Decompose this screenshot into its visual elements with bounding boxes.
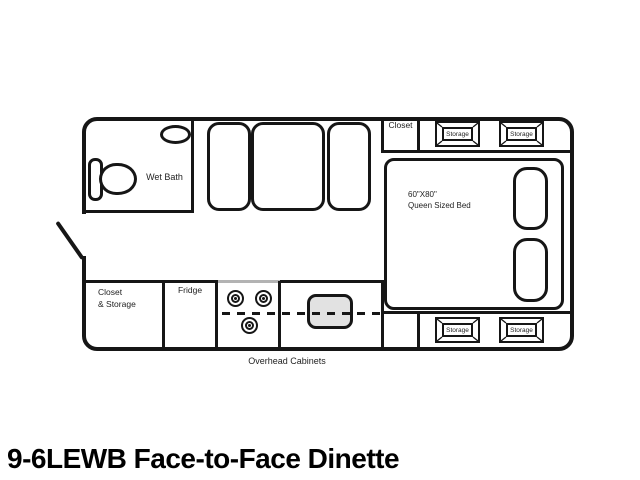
closet-label: Closet xyxy=(381,120,420,131)
counter-dashed-line xyxy=(222,312,380,315)
storage-cabinet-bottom-right: Storage xyxy=(499,317,544,343)
stove-burner-center xyxy=(262,297,265,300)
storage-cabinet-bottom-left: Storage xyxy=(435,317,480,343)
overhead-cabinets-label: Overhead Cabinets xyxy=(227,356,347,367)
storage-label: Storage xyxy=(442,127,473,141)
wet-bath-bottom-wall xyxy=(84,210,194,213)
fridge-label: Fridge xyxy=(165,285,215,296)
stove-counter-top-divider xyxy=(218,280,280,283)
bottom-strip-top-wall xyxy=(381,311,572,314)
bed-pillow-bottom xyxy=(513,238,548,302)
bed-type-label: Queen Sized Bed xyxy=(408,201,471,212)
stove-burner-center xyxy=(248,324,251,327)
bottom-strip-divider-wall xyxy=(417,311,420,347)
closet-storage-label-line1: Closet xyxy=(98,287,122,298)
wet-bath-right-wall xyxy=(191,118,194,213)
plan-title: 9-6LEWB Face-to-Face Dinette xyxy=(7,443,399,475)
wet-bath-label: Wet Bath xyxy=(137,172,192,183)
floorplan-canvas: Wet Bath Closet Storage Storage 60"X80" … xyxy=(0,0,640,480)
stove-burner-left xyxy=(227,290,244,307)
stove-burner-bottom xyxy=(241,317,258,334)
storage-cabinet-top-right: Storage xyxy=(499,121,544,147)
dinette-table xyxy=(251,122,325,211)
storage-cabinet-top-left: Storage xyxy=(435,121,480,147)
stove-burner-ring xyxy=(231,294,240,303)
dinette-seat-right xyxy=(327,122,371,211)
fridge-stove-wall xyxy=(215,281,218,347)
top-strip-bottom-wall xyxy=(381,150,572,153)
storage-label: Storage xyxy=(506,127,537,141)
galley-right-wall xyxy=(381,281,384,347)
closet-storage-label-line2: & Storage xyxy=(98,299,136,310)
stove-burner-center xyxy=(234,297,237,300)
bed-pillow-top xyxy=(513,167,548,230)
stove-burner-ring xyxy=(259,294,268,303)
dinette-seat-left xyxy=(207,122,251,211)
galley-top-wall-right xyxy=(280,280,384,283)
stove-burner-right xyxy=(255,290,272,307)
galley-top-wall-left xyxy=(84,280,218,283)
entry-door-opening xyxy=(81,214,88,256)
toilet-bowl xyxy=(99,163,137,195)
storage-label: Storage xyxy=(506,323,537,337)
bed-size-label: 60"X80" xyxy=(408,190,437,201)
stove-burner-ring xyxy=(245,321,254,330)
wet-bath-sink-oval xyxy=(160,125,191,144)
storage-label: Storage xyxy=(442,323,473,337)
